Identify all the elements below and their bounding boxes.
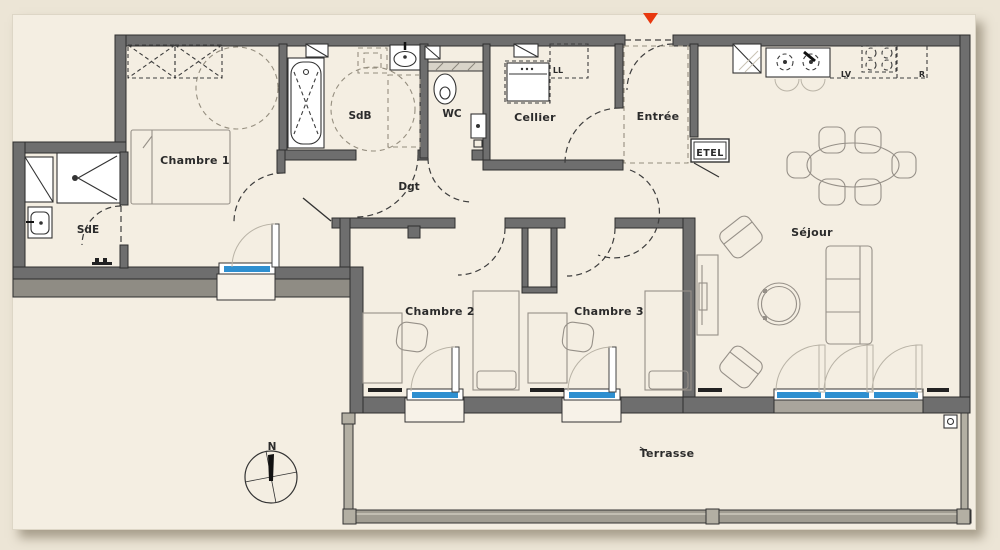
room-label-cellier: Cellier [514, 111, 556, 124]
drain-icon [944, 415, 957, 428]
door-leaf [303, 198, 331, 221]
room-label-terrasse: Terrasse [640, 447, 695, 460]
toilet-icon [434, 74, 456, 104]
cooktop-icon [862, 46, 896, 72]
room-label-sde: SdE [77, 224, 99, 236]
etel-closet: ETEL [691, 139, 729, 177]
appliance-label-ll: LL [553, 66, 563, 75]
room-label-wc: WC [442, 108, 462, 120]
armchair [717, 343, 765, 390]
room-label-sejour: Séjour [791, 226, 833, 239]
room-label-sdb: SdB [348, 110, 371, 122]
wc-shelf [428, 62, 483, 71]
chair-chambre3 [561, 321, 595, 353]
entrance-marker-icon [643, 13, 658, 24]
window-chambre2 [405, 389, 464, 422]
kitchen-sink-icon [766, 48, 830, 77]
washing-machine-icon [505, 61, 550, 103]
tech-box-icon [733, 44, 761, 73]
room-label-entree: Entrée [637, 110, 680, 123]
bathtub-icon [288, 58, 324, 148]
sde-shelf [25, 157, 53, 202]
coffee-table [758, 283, 800, 325]
window-chambre3 [562, 389, 621, 422]
wardrobe-chambre1 [128, 45, 222, 78]
window-sejour-bay [774, 389, 923, 400]
washbasin-icon [390, 42, 420, 70]
appliance-label-r: R [919, 70, 925, 79]
etel-label: ETEL [696, 148, 724, 159]
sofa [826, 246, 872, 344]
kitchen-counter [766, 46, 927, 91]
bed-chambre2 [473, 291, 519, 390]
tv-unit [697, 255, 718, 335]
window-chambre1 [217, 263, 275, 300]
sde-basin-icon [26, 207, 52, 238]
terrasse-structure [342, 413, 971, 524]
floor-plan-page: ETEL [0, 0, 1000, 550]
room-label-dgt: Dgt [398, 181, 419, 193]
walls-layer [13, 35, 970, 413]
shower-icon [57, 153, 120, 203]
room-label-chambre1: Chambre 1 [160, 154, 230, 167]
north-compass-icon: N [245, 441, 297, 503]
shutter-box-icon [425, 46, 440, 59]
entree-zone [624, 46, 688, 163]
dining-table [787, 127, 916, 205]
compass-north-label: N [268, 441, 277, 453]
room-label-chambre2: Chambre 2 [405, 305, 475, 318]
appliance-label-lv: LV [841, 70, 852, 79]
room-label-chambre3: Chambre 3 [574, 305, 644, 318]
turning-circle [331, 67, 415, 151]
bed-chambre1 [131, 130, 230, 204]
armchair [717, 213, 765, 260]
chair-chambre2 [395, 321, 429, 353]
shutter-box-icon [306, 44, 328, 57]
desk-chambre2 [363, 313, 402, 383]
shutter-box-icon [514, 44, 538, 57]
floor-plan-svg: ETEL [0, 0, 1000, 550]
desk-chambre3 [528, 313, 567, 383]
turning-circle [196, 47, 278, 129]
